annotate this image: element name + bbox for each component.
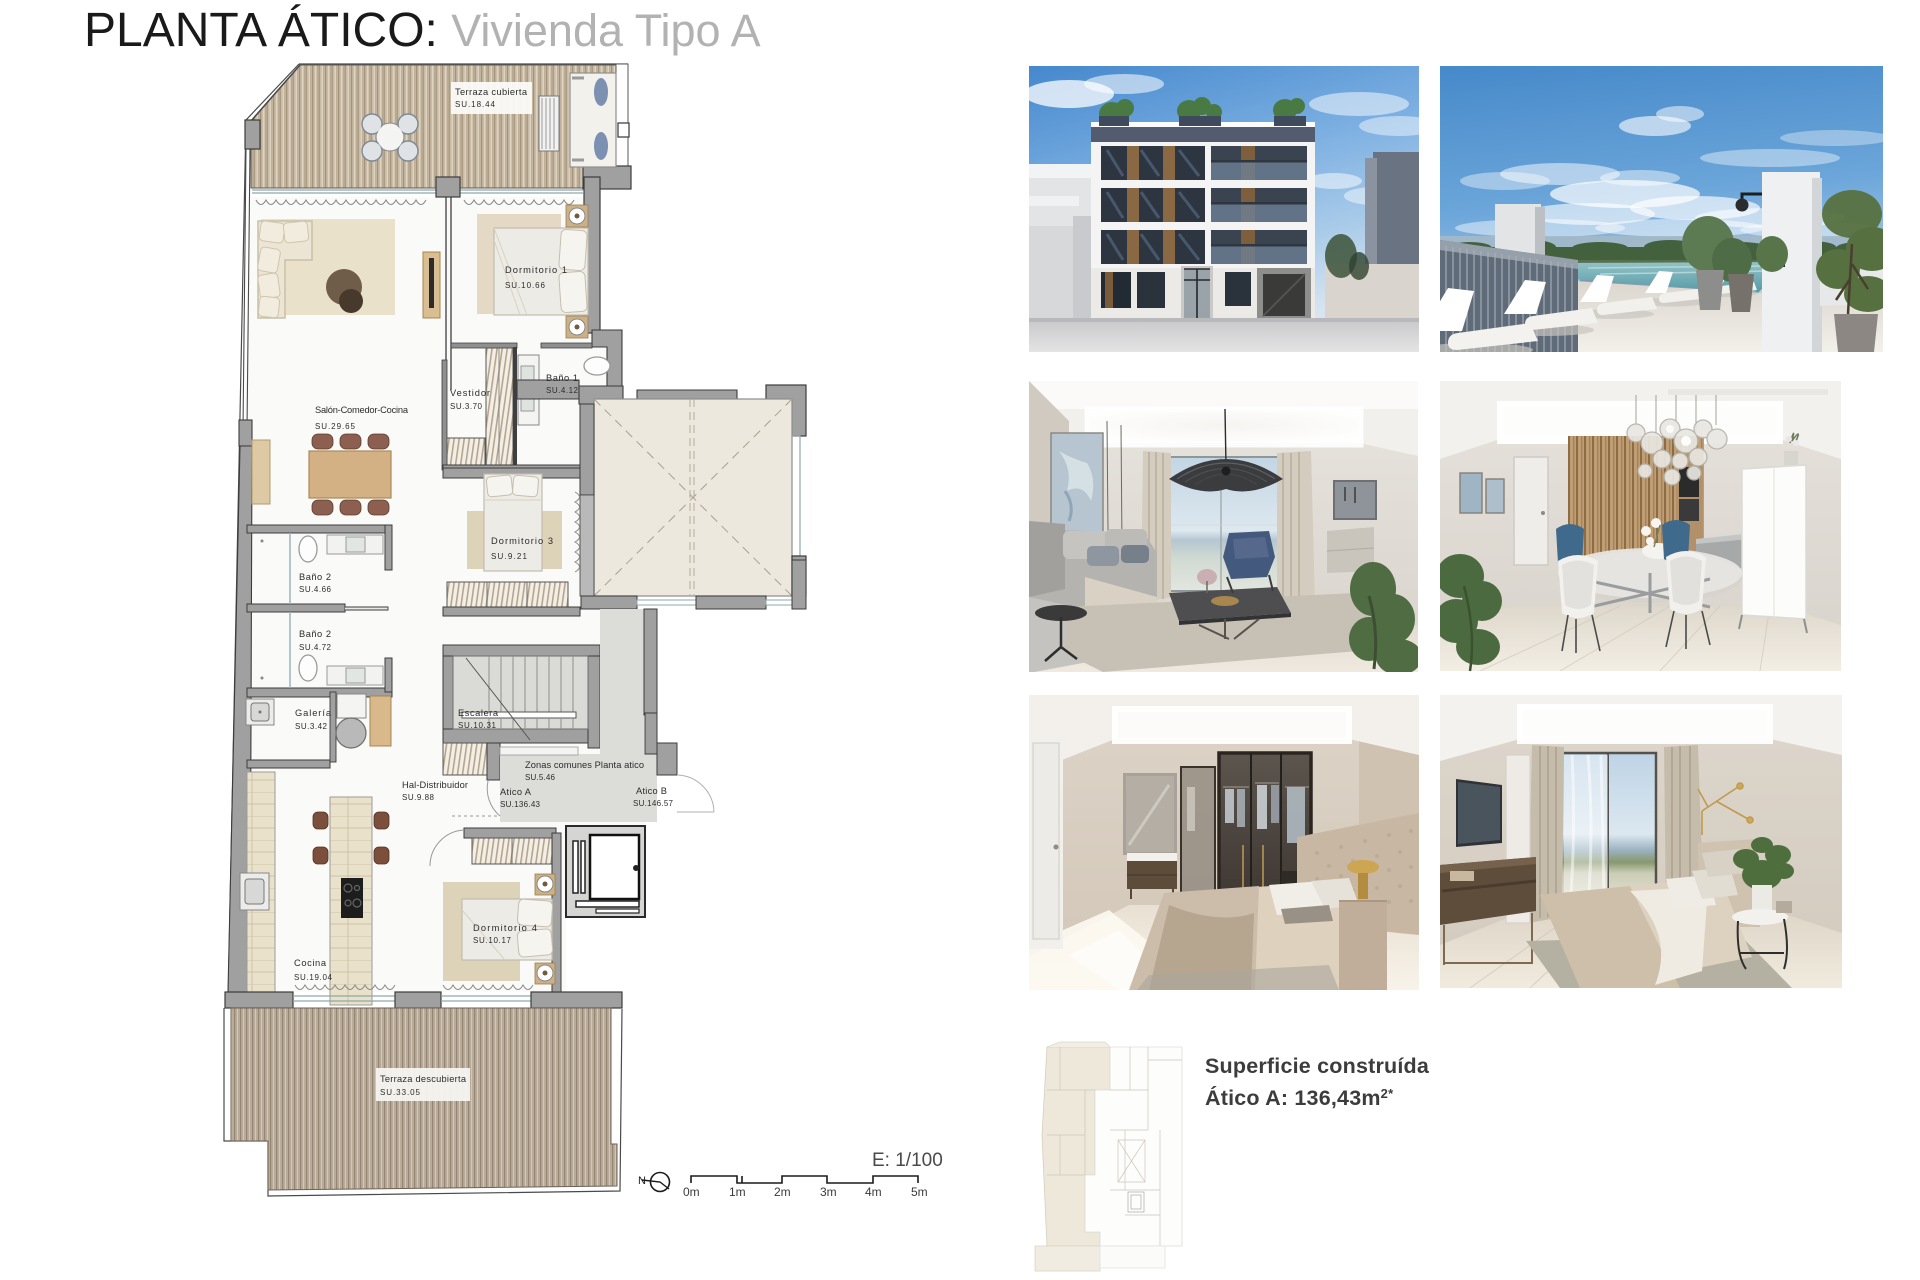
svg-text:SU.19.04: SU.19.04: [294, 973, 333, 982]
svg-text:SU.4.66: SU.4.66: [299, 585, 332, 594]
svg-text:SU.4.72: SU.4.72: [299, 643, 332, 652]
svg-text:SU.10.17: SU.10.17: [473, 936, 512, 945]
svg-text:Baño 2: Baño 2: [299, 572, 331, 582]
svg-text:0m: 0m: [683, 1185, 700, 1199]
svg-text:SU.3.70: SU.3.70: [450, 402, 483, 411]
svg-text:Atico A: Atico A: [500, 787, 532, 797]
svg-text:SU.4.12: SU.4.12: [546, 386, 579, 395]
svg-text:Dormitorio 4: Dormitorio 4: [473, 923, 537, 933]
svg-text:Terraza descubierta: Terraza descubierta: [380, 1074, 467, 1084]
svg-text:SU.10.31: SU.10.31: [458, 721, 497, 730]
svg-text:N: N: [638, 1175, 646, 1187]
svg-text:SU.33.05: SU.33.05: [380, 1088, 421, 1097]
svg-text:Vestidor: Vestidor: [450, 388, 490, 398]
svg-text:E: 1/100: E: 1/100: [872, 1150, 943, 1171]
svg-text:Dormitorio 1: Dormitorio 1: [505, 265, 567, 275]
svg-text:4m: 4m: [865, 1185, 882, 1199]
svg-text:Dormitorio 3: Dormitorio 3: [491, 536, 553, 546]
svg-text:1m: 1m: [729, 1185, 746, 1199]
svg-text:5m: 5m: [911, 1185, 928, 1199]
svg-text:Zonas comunes Planta atico: Zonas comunes Planta atico: [525, 760, 644, 770]
svg-text:SU.5.46: SU.5.46: [525, 773, 556, 782]
svg-text:Cocina: Cocina: [294, 958, 327, 968]
svg-text:SU.18.44: SU.18.44: [455, 100, 496, 109]
svg-text:Hal-Distribuidor: Hal-Distribuidor: [402, 780, 468, 790]
svg-text:Baño 2: Baño 2: [299, 629, 331, 639]
svg-text:Baño 1: Baño 1: [546, 373, 578, 383]
svg-text:Atico B: Atico B: [636, 786, 667, 796]
svg-text:SU.146.57: SU.146.57: [633, 799, 674, 808]
svg-text:SU.3.42: SU.3.42: [295, 722, 328, 731]
svg-text:SU.136.43: SU.136.43: [500, 800, 541, 809]
svg-text:3m: 3m: [820, 1185, 837, 1199]
svg-text:SU.10.66: SU.10.66: [505, 281, 546, 290]
svg-text:Salón-Comedor-Cocina: Salón-Comedor-Cocina: [315, 405, 409, 415]
svg-text:Galería: Galería: [295, 708, 332, 718]
svg-text:Escalera: Escalera: [458, 708, 499, 718]
svg-text:2m: 2m: [774, 1185, 791, 1199]
svg-text:Terraza cubierta: Terraza cubierta: [455, 87, 528, 97]
svg-text:SU.29.65: SU.29.65: [315, 422, 356, 431]
svg-text:SU.9.88: SU.9.88: [402, 793, 435, 802]
